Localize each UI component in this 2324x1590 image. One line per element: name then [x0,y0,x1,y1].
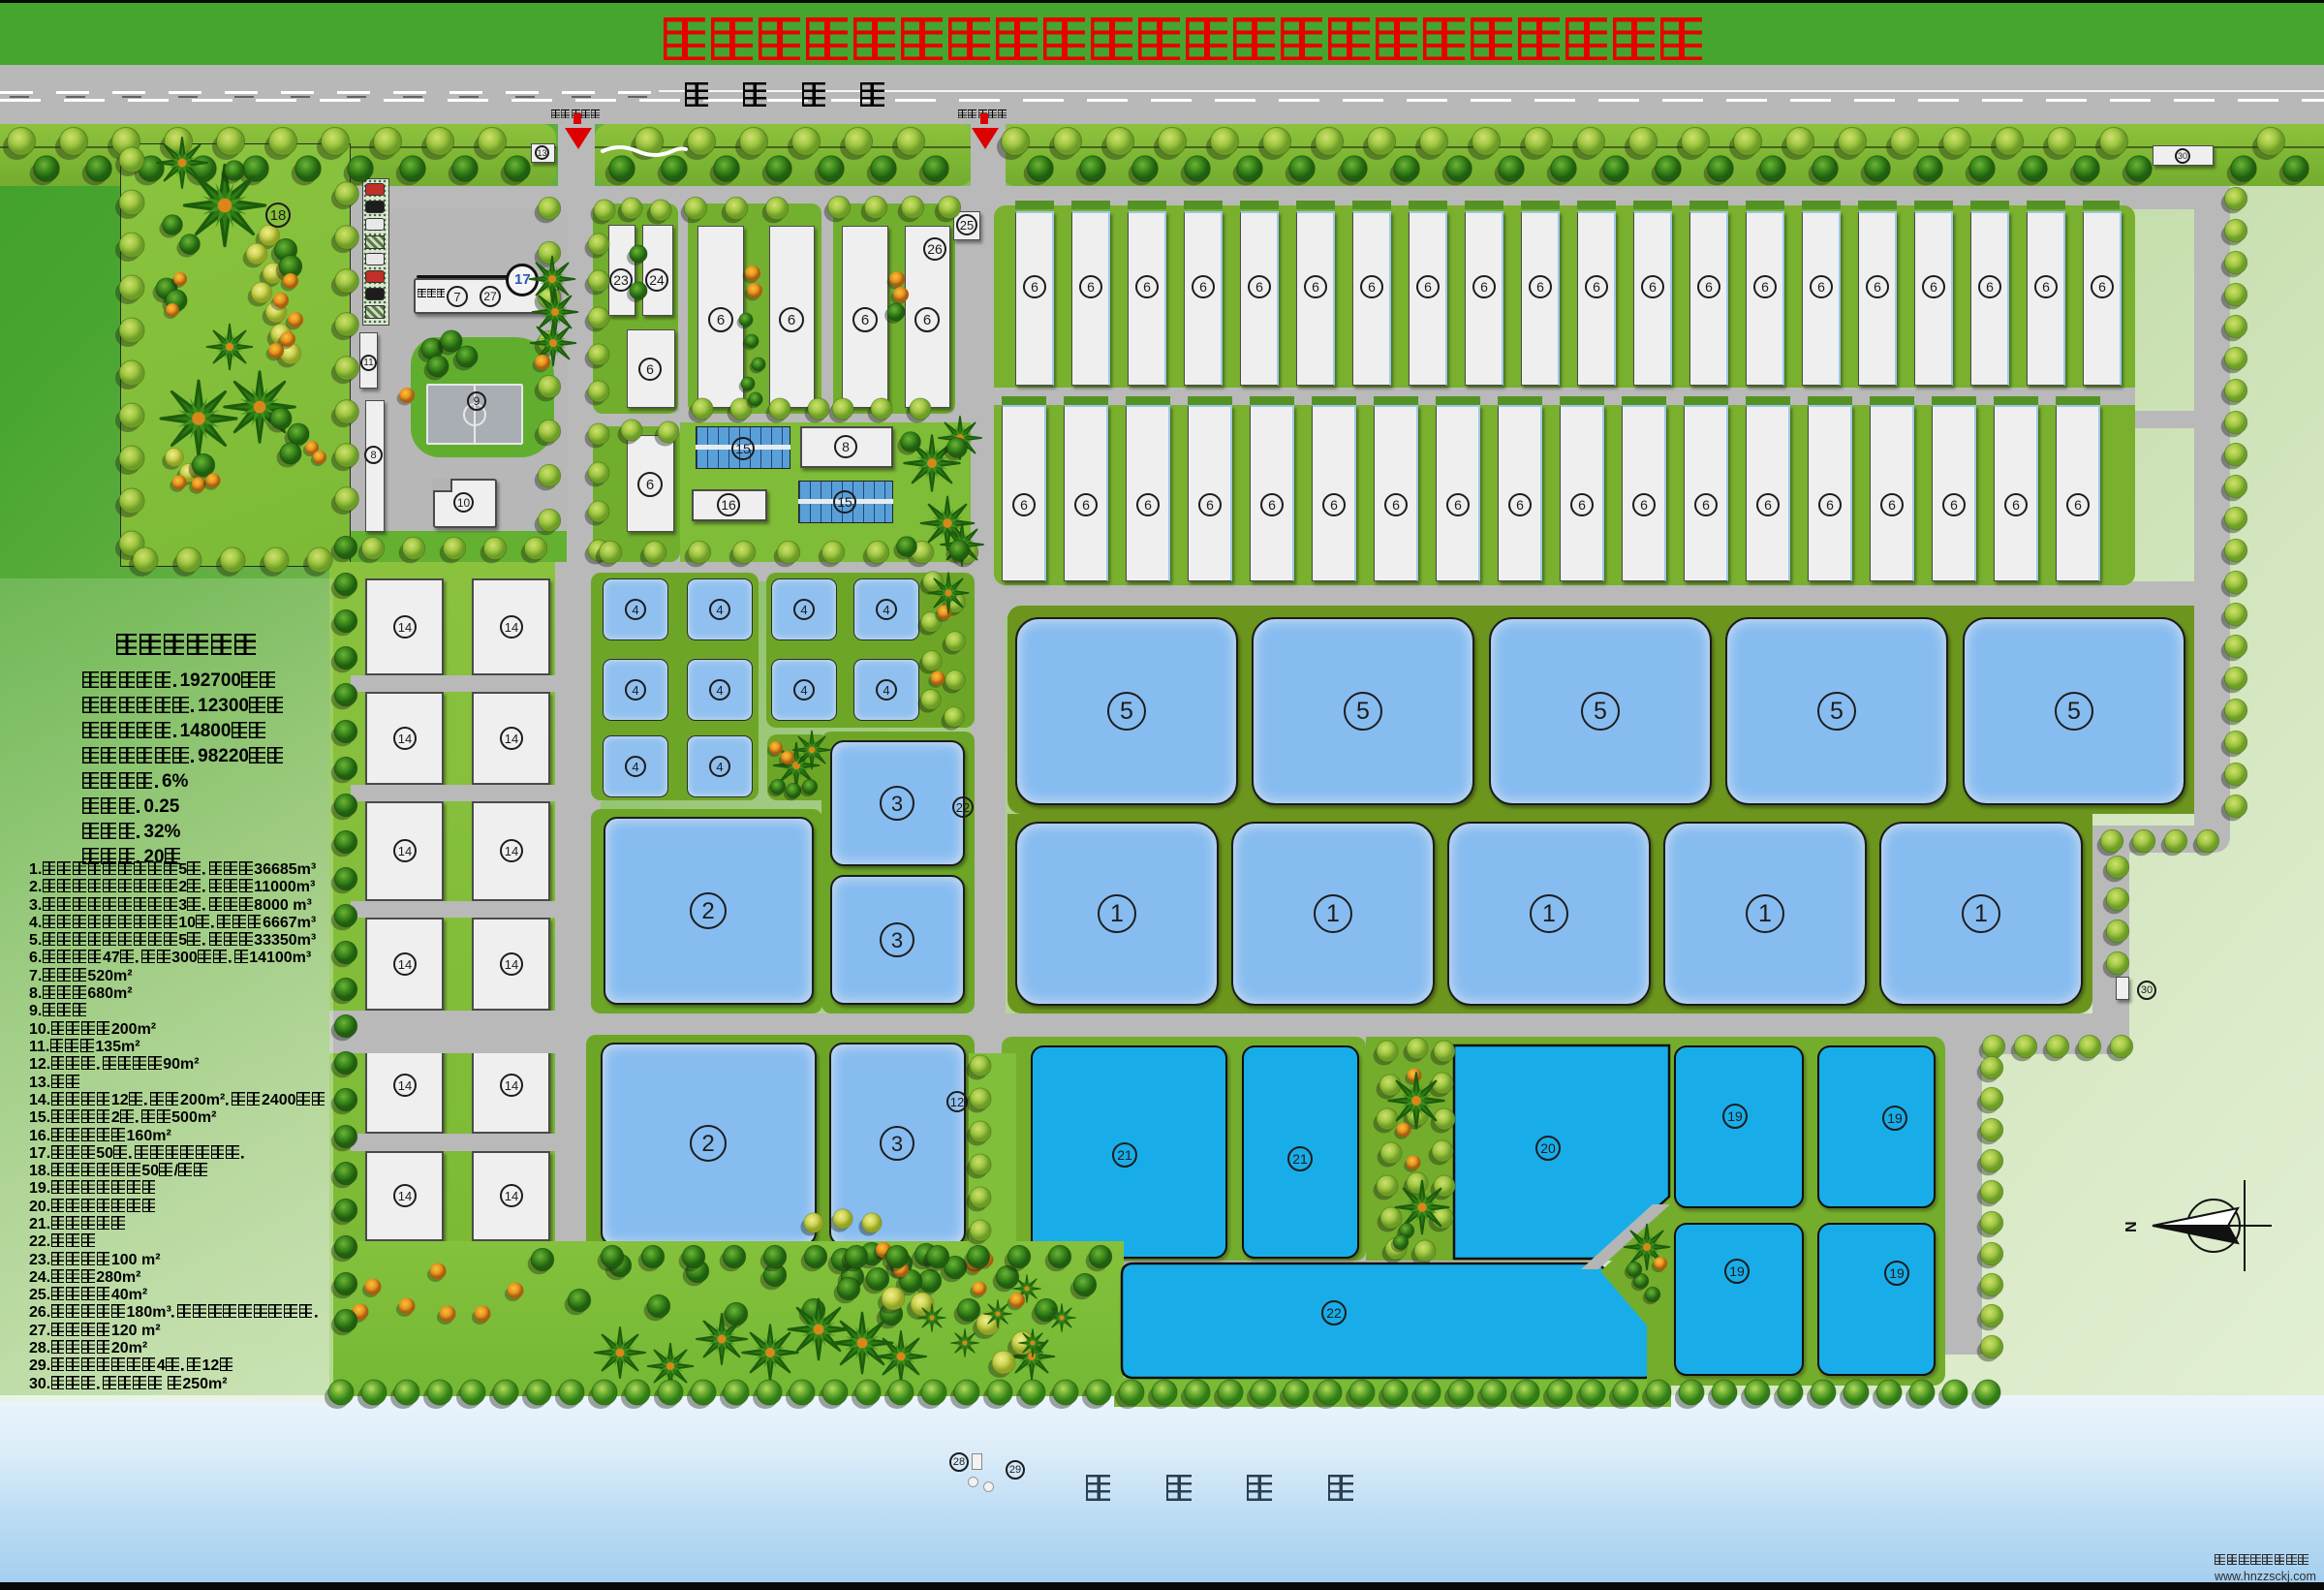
svg-text:N: N [2123,1221,2140,1232]
